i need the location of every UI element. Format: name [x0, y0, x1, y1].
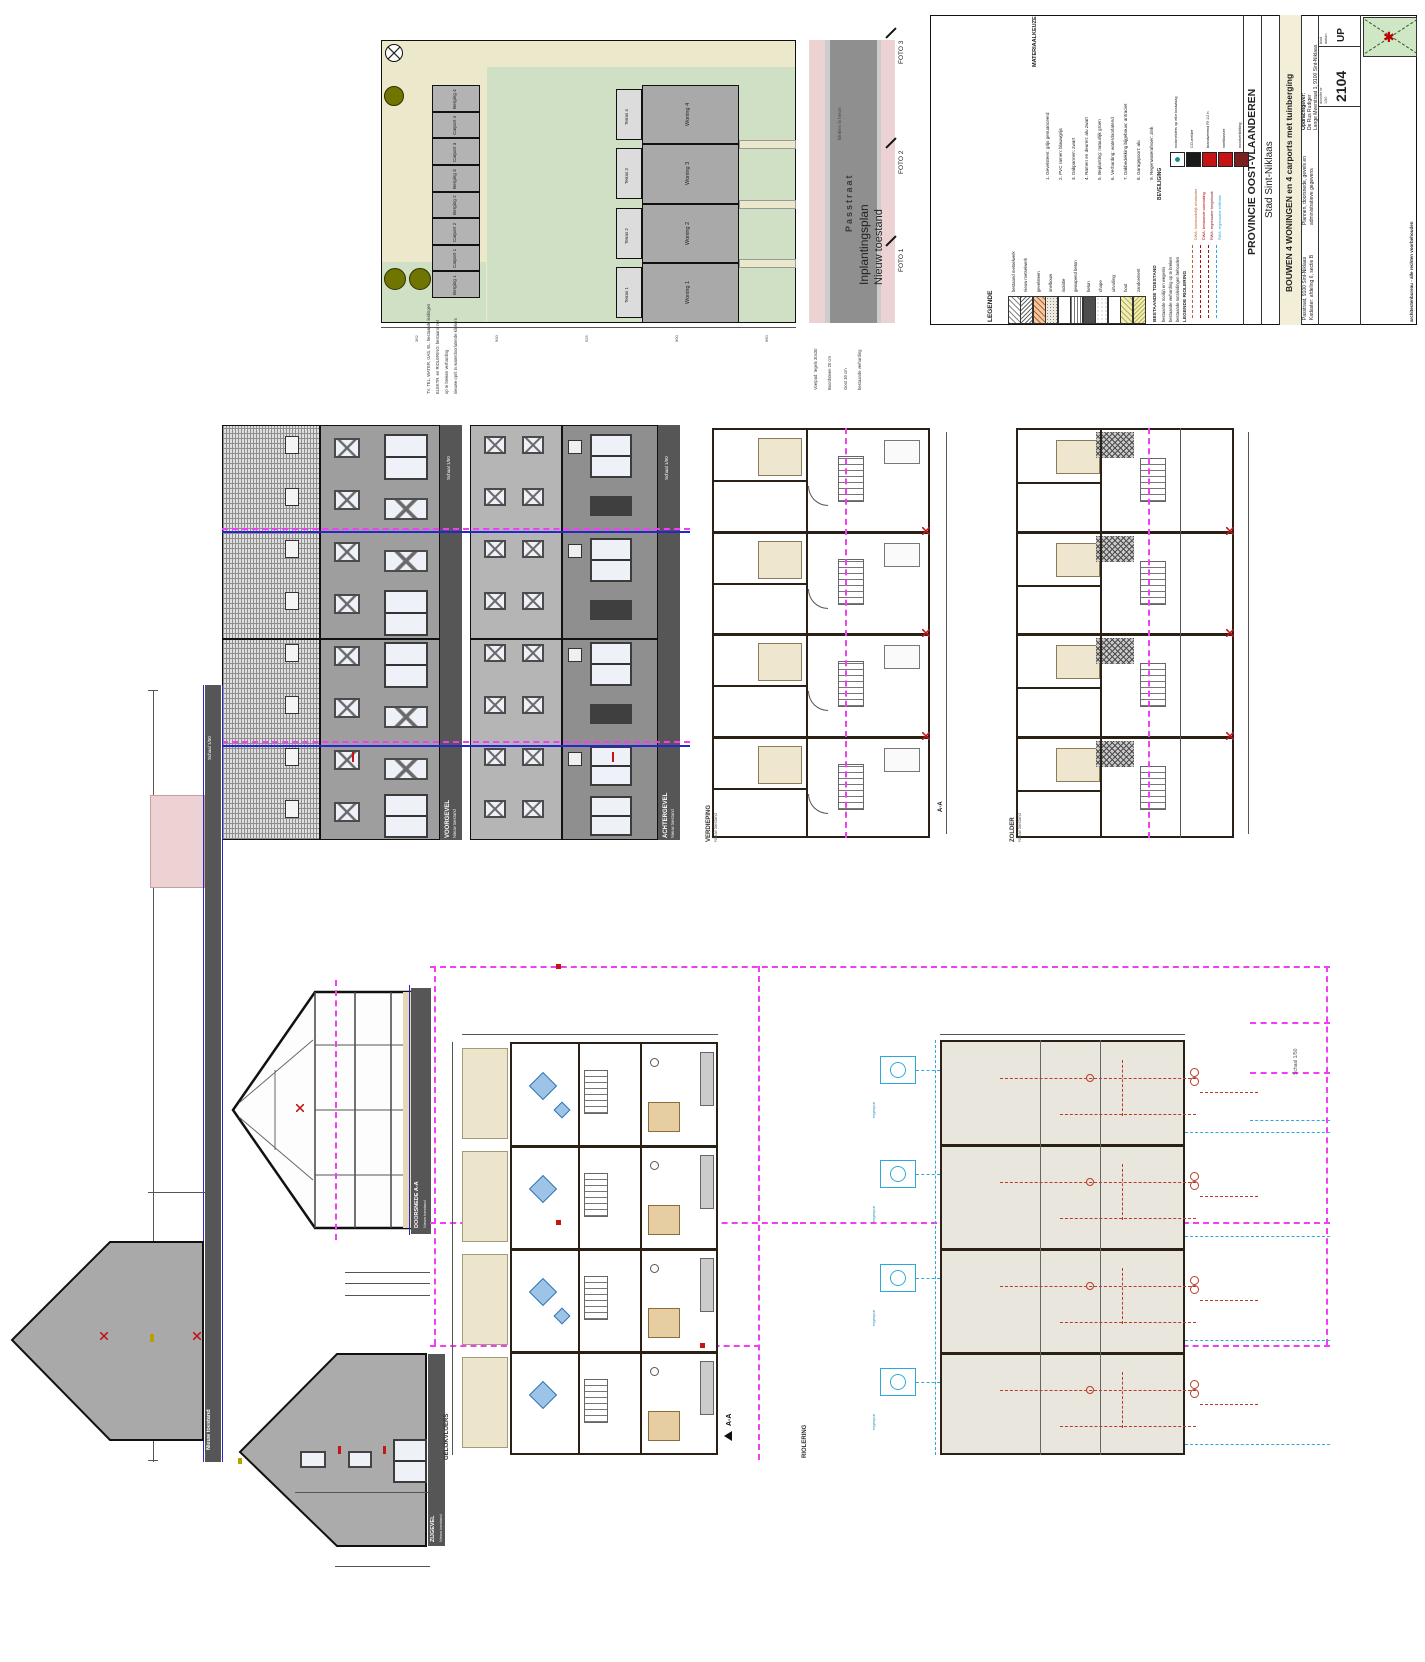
logo-star-icon: ✱ [1383, 29, 1395, 46]
inspection-pit [890, 1166, 906, 1182]
legend-label: gewapend beton [1074, 260, 1078, 292]
interior-wall [1016, 790, 1100, 792]
legend-swatch [1020, 296, 1033, 324]
terrace-label: Terras 1 [625, 287, 629, 303]
window [334, 698, 360, 718]
outbuilding-label: Carport 2 [453, 223, 458, 242]
window [334, 438, 360, 458]
section-marker: A-A [726, 1414, 733, 1426]
level-line-blue [222, 745, 690, 747]
window [384, 706, 428, 728]
roof-joint [222, 638, 320, 640]
drain-icon [1086, 1386, 1094, 1394]
window [384, 642, 428, 688]
dimension-line [152, 1192, 205, 1193]
window [590, 746, 632, 786]
material-item: 8. Garagepoort: alu [1137, 140, 1142, 180]
divider [1318, 46, 1360, 47]
smoke-detector-icon [1170, 152, 1185, 167]
drawing-sheet: Berging 4 Carport 4 Carport 3 Berging 3 … [0, 0, 1425, 1662]
dwa-line [1060, 1218, 1196, 1219]
scale-note: Schaal 1/50 [208, 736, 213, 760]
address-line: Kadaster: afdeling 6, sectie B [1310, 255, 1315, 320]
dwa-line [1200, 1196, 1258, 1197]
dossier-number: 2104 [1334, 71, 1348, 102]
bathroom [758, 643, 802, 681]
legend-swatch [1120, 296, 1133, 324]
window [522, 748, 544, 766]
scale-note: Schaal 1/50 [1294, 1049, 1299, 1075]
marker-red [700, 1343, 705, 1348]
dimension-line [335, 1566, 430, 1567]
boundary-magenta [800, 966, 1330, 968]
tank-label: regenput [872, 1102, 876, 1118]
material-item: 5. Beplanting: natuurlijk groen [1098, 119, 1103, 180]
drawing-subtitle: Nieuw toestand [439, 1514, 443, 1542]
photo-label: FOTO 1 [899, 249, 906, 272]
material-item: 3. Dakpannen: zwart [1072, 138, 1077, 180]
bathroom [758, 541, 802, 579]
utility-note: ELEKTR. en RIOLERING: bestaand net [436, 320, 440, 394]
kitchen-counter [700, 1258, 714, 1312]
party-wall [712, 633, 930, 636]
legend-label: uitvulling [1112, 275, 1116, 292]
tree-icon [384, 268, 406, 290]
roof-window [285, 436, 299, 454]
party-wall [940, 1352, 1185, 1355]
survey-mark-icon [296, 1104, 304, 1112]
extinguisher-icon [1218, 152, 1233, 167]
legend-label: isolatie [1062, 279, 1066, 292]
photo-label: FOTO 3 [899, 41, 906, 64]
safety-label: snelblusser [1223, 129, 1227, 148]
void-hatch [1096, 741, 1134, 767]
survey-mark-icon [922, 732, 930, 740]
party-wall [510, 1145, 718, 1148]
dimension-line [452, 1042, 453, 1455]
window [568, 440, 582, 454]
party-wall [940, 1144, 1185, 1147]
level-line-magenta [222, 528, 690, 530]
dimension-line [940, 1034, 1185, 1035]
spandrel-panel [590, 496, 632, 516]
roof-window [285, 540, 299, 558]
stair [584, 1379, 608, 1423]
party-wall [940, 1248, 1185, 1251]
legend-label: beton [1087, 281, 1091, 292]
stair [838, 456, 864, 502]
utility-note: nieuwe oprit in waterdoorlatende klinker… [454, 318, 458, 394]
roof-window [285, 748, 299, 766]
party-wall [1016, 633, 1234, 636]
sheet-code: UP [1337, 28, 1347, 42]
drawing-subtitle: Nieuw toestand [671, 809, 675, 838]
sewer-line-sample [1192, 245, 1193, 318]
divider [1318, 106, 1360, 107]
toilet [650, 1264, 659, 1273]
safety-label: CO-melder [1191, 129, 1195, 148]
divider [1243, 15, 1244, 325]
stair [584, 1276, 608, 1320]
marker-yellow [238, 1458, 242, 1464]
interior-wall [1016, 687, 1100, 689]
boundary-magenta [1326, 966, 1328, 1345]
legend-label: zandcement [1137, 269, 1141, 292]
marker-red [383, 1446, 386, 1454]
existing-line: bestaande rooilijn en wegenis [1162, 267, 1166, 322]
sewer-legend-title: LEGENDE RIOLERING [1184, 271, 1189, 322]
bed [884, 543, 920, 567]
cell-header: datum [1325, 33, 1329, 44]
window [484, 436, 506, 454]
existing-title: BESTAANDE TOESTAND [1154, 265, 1159, 322]
tree-icon [384, 86, 404, 106]
ground-line-blue [409, 985, 410, 1235]
interior-wall [1100, 1040, 1101, 1455]
dwa-line [1200, 1300, 1258, 1301]
drain-icon [1086, 1282, 1094, 1290]
outbuilding-label: Carport 4 [453, 116, 458, 135]
survey-mark-icon [100, 1332, 108, 1340]
window [484, 696, 506, 714]
manhole-icon [1190, 1181, 1199, 1190]
address-line: Passtraat, 9100 Sint-Niklaas [1303, 257, 1308, 320]
house-label: Woning 1 [686, 281, 692, 304]
architect-line: architectenbureau - alle rechten voorbeh… [1410, 221, 1415, 322]
utility-note: op te breken verharding [445, 350, 449, 394]
dimension-tick [148, 690, 158, 691]
outbuilding-label: Carport 1 [453, 249, 458, 268]
party-wall [1016, 736, 1234, 739]
dimension-line [1248, 432, 1249, 834]
section-arrow-icon [724, 1431, 732, 1441]
inspection-pit [890, 1374, 906, 1390]
survey-mark-icon [193, 1332, 201, 1340]
photo-label: FOTO 2 [899, 151, 906, 174]
materials-title: MATERIAALKEUZE [1033, 16, 1039, 67]
dimension-line [295, 1492, 428, 1493]
architect-logo: ✱ [1363, 17, 1417, 57]
site-plan-title: Inplantingsplan [858, 204, 870, 285]
material-item: 1. Gevelsteen: grijs genuanceerd [1046, 113, 1051, 180]
window [384, 590, 428, 636]
outbuilding-label: Berging 1 [453, 275, 458, 295]
dwa-line [1000, 1390, 1196, 1391]
dimension-text: 362 [415, 335, 419, 342]
legend-swatch [1045, 296, 1058, 324]
photo-arrow-icon [885, 27, 896, 38]
sewer-line-sample [1216, 245, 1217, 318]
inspection-pit [890, 1062, 906, 1078]
boundary-line-blue [222, 685, 223, 1462]
window [484, 644, 506, 662]
roof-window [285, 800, 299, 818]
sewer-line-sample [1208, 245, 1209, 318]
dwa-line [1060, 1322, 1196, 1323]
drawing-subtitle: Nieuw toestand [423, 1200, 427, 1228]
legend-label: hout [1124, 284, 1128, 292]
plans-line: Plannen, doorsnede, gevels en [1303, 156, 1308, 225]
window [334, 750, 360, 770]
safety-label: rookmelders op elke bouwlaag [1175, 97, 1179, 149]
bathroom [758, 438, 802, 476]
dwa-line [1000, 1286, 1196, 1287]
roof-window [285, 592, 299, 610]
interior-wall [640, 1042, 642, 1455]
axis-line-magenta [845, 428, 847, 838]
window [334, 490, 360, 510]
interior-wall [712, 685, 806, 687]
level-marker [352, 752, 354, 762]
divider [1279, 15, 1280, 325]
site-plan-subtitle: Nieuw toestand [874, 209, 885, 285]
roof-window [285, 696, 299, 714]
outbuilding-label: Carport 3 [453, 143, 458, 162]
dwa-line [1122, 1164, 1123, 1220]
sewer-line-sample [1200, 245, 1201, 318]
dwa-line [1200, 1404, 1258, 1405]
stair [1140, 766, 1166, 810]
legend-label: bestaand metselwerk [1012, 251, 1016, 292]
window [384, 550, 428, 572]
roof-window [285, 488, 299, 506]
rwa-line [1185, 1236, 1330, 1237]
north-arrow-icon [385, 44, 403, 62]
marker-red [556, 1220, 561, 1225]
inspection-pit [890, 1270, 906, 1286]
survey-mark-icon [1226, 527, 1234, 535]
interior-wall [806, 428, 808, 838]
window [334, 646, 360, 666]
interior-wall [1180, 428, 1181, 838]
roof-window [285, 644, 299, 662]
rwa-line [1185, 1340, 1330, 1341]
dwa-line [1000, 1182, 1196, 1183]
material-item: 9. Regenwaterafvoer: zink [1150, 127, 1155, 180]
drawing-subtitle: Nieuw toestand [453, 809, 457, 838]
drawing-title: GELIJKVLOERS [444, 1414, 450, 1460]
rwa-line [916, 1174, 940, 1175]
window [522, 436, 544, 454]
existing-line: bestaande verharding op te breken [1169, 257, 1173, 322]
manhole-icon [1190, 1068, 1199, 1077]
stair [838, 764, 864, 810]
legend-swatch [1095, 296, 1108, 324]
party-wall [712, 531, 930, 534]
divider [1360, 15, 1361, 325]
survey-mark-icon [1226, 732, 1234, 740]
drawing-title: DOORSNEDE A-A [415, 1181, 421, 1228]
front-path [739, 200, 796, 209]
drawing-title-bar [658, 425, 680, 840]
dimension-line [946, 432, 947, 834]
manhole-icon [1190, 1380, 1199, 1389]
tank-label: regenput [872, 1206, 876, 1222]
interior-wall [712, 583, 806, 585]
legend-label: chape [1099, 280, 1103, 292]
party-wall [510, 1248, 718, 1251]
window [522, 540, 544, 558]
section-drawing [225, 985, 413, 1235]
spandrel-panel [590, 704, 632, 724]
plans-line: administratieve gegevens [1310, 168, 1315, 225]
window [522, 592, 544, 610]
level-marker [612, 752, 614, 762]
drawing-title: ZIJGEVEL [431, 1515, 437, 1542]
safety-label: brandwerend Rf 1/2 h [1207, 111, 1211, 148]
stair [1140, 663, 1166, 707]
dimension-text: 960 [765, 335, 769, 342]
window [393, 1439, 427, 1483]
rwa-line [935, 1040, 936, 1455]
front-path [739, 140, 796, 149]
window [590, 538, 632, 582]
material-item: 4. Ramen en deuren: alu zwart [1085, 117, 1090, 180]
tank-label: regenput [872, 1310, 876, 1326]
outbuilding-label: Berging 4 [453, 89, 458, 109]
legend-swatch [1070, 296, 1083, 324]
sewer-legend-label: RWA: regenwater hergebruik [1211, 191, 1215, 240]
window [484, 800, 506, 818]
window [522, 644, 544, 662]
utility-note: TV, TEL, WATER, GAS, EL: bestaande leidi… [427, 304, 431, 394]
level-line-blue [222, 531, 690, 533]
scale-note: Schaal 1/50 [665, 456, 670, 480]
window [568, 648, 582, 662]
terrace [462, 1048, 508, 1139]
boundary-magenta [434, 966, 436, 1345]
dimension-line [381, 327, 796, 328]
manhole-icon [1190, 1276, 1199, 1285]
window [384, 794, 428, 838]
drawing-title: ACHTERGEVEL [663, 793, 669, 838]
window [384, 758, 428, 780]
co-detector-icon [1186, 152, 1201, 167]
party-wall [1016, 531, 1234, 534]
window [484, 592, 506, 610]
boundary-magenta [430, 966, 798, 968]
bed [884, 440, 920, 464]
project-title: BOUWEN 4 WONINGEN en 4 carports met tuin… [1285, 74, 1294, 292]
boundary-magenta [758, 966, 760, 1460]
dwa-line [1060, 1426, 1196, 1427]
rwa-line [1185, 1132, 1330, 1133]
window [300, 1451, 326, 1468]
drawing-title: RIOLERING [802, 1425, 808, 1458]
spandrel-panel [590, 600, 632, 620]
window [590, 796, 632, 836]
street-surface: klinkers in beton [838, 107, 843, 140]
dwa-line [1060, 1114, 1196, 1115]
street-note: Boordsteen 20 cm [828, 356, 832, 390]
window [568, 544, 582, 558]
safety-label: noodverlichting [1239, 122, 1243, 148]
bed [884, 645, 920, 669]
house-label: Woning 4 [686, 103, 692, 126]
outbuilding-label: Berging 2 [453, 195, 458, 215]
title-block [930, 15, 1417, 325]
party-wall [510, 1351, 718, 1354]
street-note: Voetpad: tegels 30x30 [814, 349, 818, 390]
section-marker: A-A [938, 801, 944, 812]
marker-red [338, 1446, 341, 1454]
dining-table [648, 1411, 680, 1441]
existing-building [150, 795, 205, 888]
drawing-title: VOORGEVEL [445, 800, 451, 838]
front-path [739, 259, 796, 268]
window [384, 498, 428, 520]
dimension-text: 900 [675, 335, 679, 342]
toilet [650, 1367, 659, 1376]
window [484, 748, 506, 766]
rwa-line [916, 1278, 940, 1279]
window [334, 542, 360, 562]
rwa-line [1185, 1444, 1330, 1445]
street-name: Passtraat [845, 173, 854, 232]
interior-wall [1040, 1040, 1041, 1455]
attic-room [1056, 645, 1100, 679]
dimension-text: 525 [585, 335, 589, 342]
tree-icon [409, 268, 431, 290]
window [568, 752, 582, 766]
street-note: bestaande verharding [858, 349, 862, 390]
marker-red [556, 964, 561, 969]
axis-line-magenta [335, 980, 337, 1240]
attic-room [1056, 440, 1100, 474]
material-item: 6. Verharding: waterdoorlatend [1111, 117, 1116, 180]
tank-label: regenput [872, 1414, 876, 1430]
toilet [650, 1058, 659, 1067]
window [484, 540, 506, 558]
interior-wall [1016, 585, 1100, 587]
sidewalk [809, 40, 825, 323]
terrace-label: Terras 3 [625, 168, 629, 184]
survey-mark-icon [1226, 629, 1234, 637]
drawing-title-bar [440, 425, 462, 840]
dwa-line [1122, 1060, 1123, 1116]
outbuilding-label: Berging 3 [453, 169, 458, 189]
large-gable [5, 1235, 210, 1447]
survey-mark-icon [922, 629, 930, 637]
dwa-line [1000, 1078, 1196, 1079]
window [522, 696, 544, 714]
interior-wall [1100, 428, 1102, 838]
window [348, 1451, 372, 1468]
material-item: 7. Dakbedekking bijgebouw: antraciet [1124, 104, 1129, 180]
dining-table [648, 1205, 680, 1235]
window [590, 434, 632, 478]
kitchen-counter [700, 1155, 714, 1209]
stair [838, 559, 864, 605]
city: Stad Sint-Niklaas [1265, 141, 1275, 218]
roof-plane [222, 425, 320, 840]
manhole-icon [1190, 1389, 1199, 1398]
legend-label: gevelsteen [1037, 271, 1041, 292]
stair [1140, 458, 1166, 502]
interior-wall [578, 1042, 580, 1455]
material-item: 2. PVC ramen: blauwgrijs [1059, 128, 1064, 180]
window [522, 488, 544, 506]
marker-yellow [150, 1334, 154, 1342]
terrace-label: Terras 4 [625, 109, 629, 125]
attic-room [1056, 543, 1100, 577]
toilet [650, 1161, 659, 1170]
province: PROVINCIE OOST-VLAANDEREN [1247, 89, 1258, 255]
bed [884, 748, 920, 772]
boundary-magenta [1250, 1072, 1330, 1074]
dining-table [648, 1102, 680, 1132]
street-note: Goot 30 cm [844, 368, 848, 390]
